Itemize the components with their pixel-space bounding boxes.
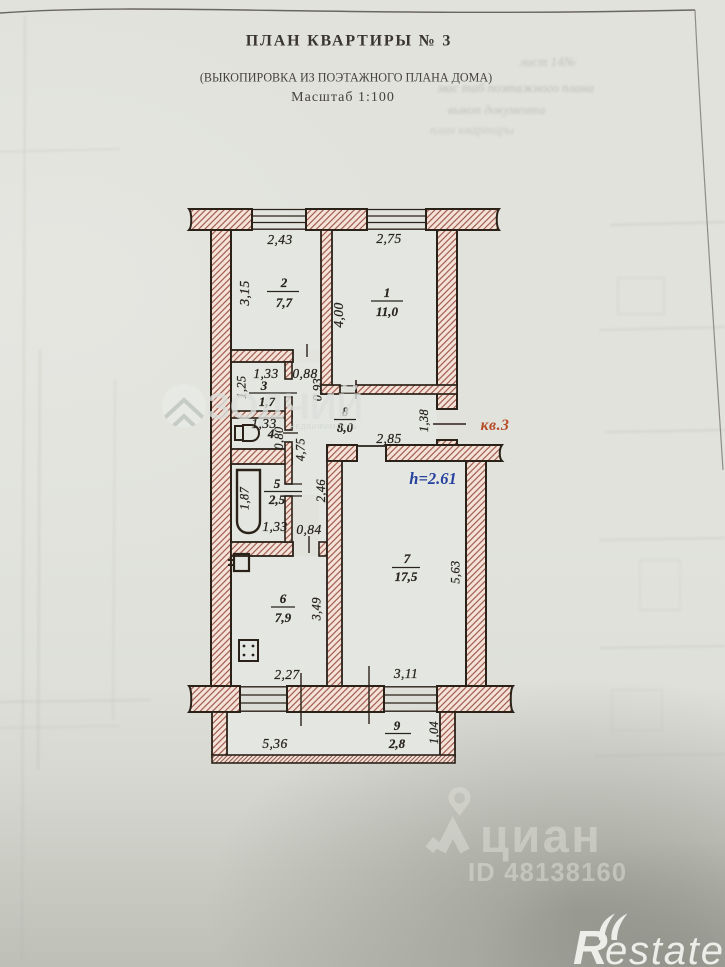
svg-text:9: 9 xyxy=(394,718,401,733)
svg-text:11,0: 11,0 xyxy=(376,304,399,319)
svg-text:5,63: 5,63 xyxy=(449,560,463,583)
svg-text:2,43: 2,43 xyxy=(267,232,292,247)
svg-text:1,04: 1,04 xyxy=(427,721,441,744)
svg-text:НЕДВИЖИМОСТЬ: НЕДВИЖИМОСТЬ xyxy=(290,424,358,431)
svg-text:0,84: 0,84 xyxy=(296,522,321,537)
svg-text:Масштаб 1:100: Масштаб 1:100 xyxy=(291,90,395,105)
svg-text:2,5: 2,5 xyxy=(268,492,286,507)
svg-text:4,75: 4,75 xyxy=(294,438,308,461)
svg-text:17,5: 17,5 xyxy=(395,569,418,584)
svg-text:ЗОДЧИЙ: ЗОДЧИЙ xyxy=(207,385,363,427)
svg-text:3,15: 3,15 xyxy=(237,280,252,306)
svg-text:кв.3: кв.3 xyxy=(481,417,510,434)
svg-text:4,00: 4,00 xyxy=(331,302,346,327)
svg-text:6: 6 xyxy=(280,591,287,606)
svg-text:1,87: 1,87 xyxy=(238,486,252,510)
svg-text:0,80: 0,80 xyxy=(272,426,286,449)
svg-text:1,38: 1,38 xyxy=(417,408,431,432)
svg-text:лист 14№: лист 14№ xyxy=(519,54,576,69)
svg-text:2,46: 2,46 xyxy=(314,479,328,503)
svg-text:циан: циан xyxy=(480,809,602,862)
svg-text:план квартиры: план квартиры xyxy=(430,122,514,137)
svg-text:ПЛАН КВАРТИРЫ № 3: ПЛАН КВАРТИРЫ № 3 xyxy=(246,33,452,50)
svg-text:R: R xyxy=(573,922,608,967)
svg-text:2,27: 2,27 xyxy=(274,667,300,682)
svg-text:estate: estate xyxy=(605,929,725,967)
svg-text:(ВЫКОПИРОВКА ИЗ ПОЭТАЖНОГО ПЛА: (ВЫКОПИРОВКА ИЗ ПОЭТАЖНОГО ПЛАНА ДОМА) xyxy=(200,71,492,85)
svg-text:2,85: 2,85 xyxy=(376,431,401,446)
svg-text:5,36: 5,36 xyxy=(262,736,287,751)
svg-text:5: 5 xyxy=(274,476,281,491)
svg-text:3,49: 3,49 xyxy=(310,597,324,621)
svg-text:1: 1 xyxy=(384,285,391,300)
svg-text:3,11: 3,11 xyxy=(393,666,418,681)
svg-text:2,8: 2,8 xyxy=(388,736,406,751)
svg-text:2,75: 2,75 xyxy=(376,231,401,246)
svg-text:7: 7 xyxy=(404,551,411,566)
svg-text:ID 48138160: ID 48138160 xyxy=(468,859,627,887)
svg-text:1,33: 1,33 xyxy=(262,519,287,534)
svg-text:выкоп документа: выкоп документа xyxy=(448,102,546,117)
svg-text:7,7: 7,7 xyxy=(276,295,293,310)
svg-text:7,9: 7,9 xyxy=(275,610,292,625)
svg-text:2: 2 xyxy=(280,275,288,290)
svg-text:h=2.61: h=2.61 xyxy=(409,469,456,488)
